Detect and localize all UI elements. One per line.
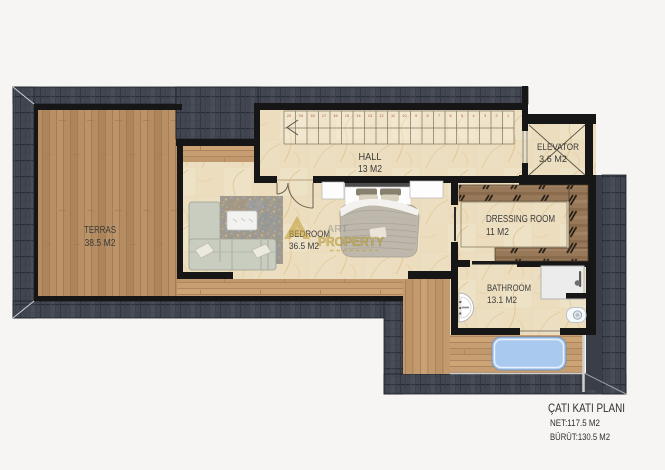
svg-text:14: 14 — [356, 114, 360, 118]
svg-text:13 M2: 13 M2 — [358, 164, 382, 175]
svg-text:19: 19 — [299, 114, 303, 118]
svg-text:16: 16 — [333, 114, 337, 118]
svg-text:TERRAS: TERRAS — [84, 225, 116, 236]
svg-text:6: 6 — [449, 114, 451, 118]
svg-text:17: 17 — [322, 114, 326, 118]
svg-text:BÜRÜT:130.5 M2: BÜRÜT:130.5 M2 — [550, 432, 610, 443]
svg-text:ART: ART — [327, 224, 348, 235]
svg-text:3: 3 — [484, 114, 486, 118]
svg-text:NET:117.5 M2: NET:117.5 M2 — [550, 418, 600, 429]
svg-text:10: 10 — [402, 114, 406, 118]
svg-text:18: 18 — [310, 114, 314, 118]
svg-text:8: 8 — [426, 114, 428, 118]
svg-text:7: 7 — [438, 114, 440, 118]
svg-text:9: 9 — [415, 114, 417, 118]
svg-text:BATHROOM: BATHROOM — [487, 283, 531, 294]
svg-text:13: 13 — [368, 114, 372, 118]
svg-text:HALL: HALL — [359, 152, 382, 163]
svg-text:38.5 M2: 38.5 M2 — [85, 238, 116, 249]
svg-text:1: 1 — [507, 114, 509, 118]
svg-text:11 M2: 11 M2 — [486, 227, 509, 238]
svg-text:15: 15 — [345, 114, 349, 118]
svg-text:ÇATI KATI PLANI: ÇATI KATI PLANI — [548, 403, 625, 415]
svg-text:3.6 M2: 3.6 M2 — [539, 154, 567, 165]
svg-text:ELEVATOR: ELEVATOR — [537, 142, 579, 153]
svg-text:5: 5 — [461, 114, 463, 118]
svg-text:PROPERTY: PROPERTY — [318, 235, 385, 249]
svg-text:13.1 M2: 13.1 M2 — [487, 295, 517, 306]
svg-text:20: 20 — [287, 114, 291, 118]
svg-text:12: 12 — [379, 114, 383, 118]
svg-text:2: 2 — [495, 114, 497, 118]
svg-text:36.5 M2: 36.5 M2 — [289, 241, 319, 252]
svg-text:DRESSING ROOM: DRESSING ROOM — [486, 214, 555, 225]
svg-text:11: 11 — [391, 114, 395, 118]
svg-text:4: 4 — [472, 114, 474, 118]
